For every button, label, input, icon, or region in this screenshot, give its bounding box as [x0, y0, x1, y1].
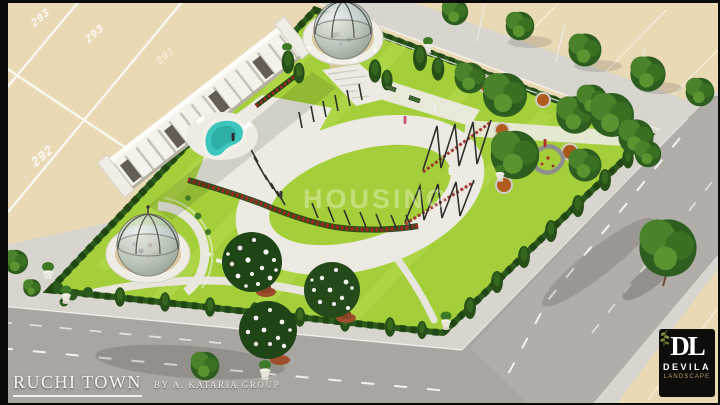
logo-monogram: DL [670, 331, 704, 361]
project-subtitle: BY A. KATARIA GROUP [154, 380, 280, 390]
devila-logo: DL DEVILA LANDSCAPE [659, 329, 715, 397]
project-title: RUCHI TOWN [13, 372, 142, 397]
leaf-icon [659, 329, 671, 347]
title-block: RUCHI TOWN BY A. KATARIA GROUP [13, 372, 280, 397]
aerial-park-render: 293 293 291 292 HOUSING RUCHI TOWN BY A.… [0, 0, 720, 405]
swimming-pool [186, 112, 258, 160]
logo-tagline: LANDSCAPE [664, 374, 710, 380]
logo-name: DEVILA [663, 362, 711, 372]
watermark: HOUSING [303, 184, 450, 215]
